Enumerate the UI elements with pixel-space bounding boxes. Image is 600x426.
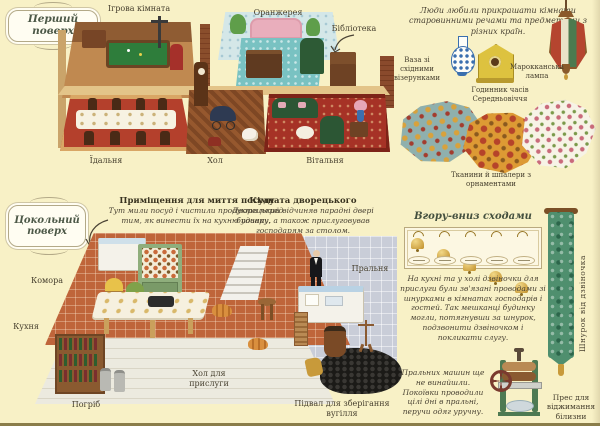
- game-cabinet: [82, 30, 106, 48]
- kitchen-stove-pot: [148, 296, 174, 307]
- fabrics-label: Тканини й шпалери з орнаментами: [428, 171, 554, 189]
- label-game-room: Ігрова кімната: [93, 4, 185, 14]
- laundry-note: Пральних машин ще не винайшли. Покоївки …: [400, 368, 486, 417]
- flower-vase: [357, 110, 364, 122]
- red-bag: [208, 137, 221, 146]
- cat: [248, 338, 268, 350]
- cat: [212, 304, 232, 317]
- label-servants-hall: Хол для прислуги: [176, 369, 242, 389]
- living-sofa: [272, 98, 318, 118]
- plant-right: [306, 18, 320, 36]
- label-dining: Їдальня: [70, 156, 142, 166]
- bells-body: На кухні та у холі дзвіночки для прислуг…: [400, 274, 546, 342]
- green-armchair: [300, 38, 324, 74]
- milk-churn: [114, 370, 125, 392]
- living-armchair: [320, 116, 344, 144]
- label-living: Вітальня: [293, 156, 357, 166]
- laundry-tub: [324, 326, 346, 357]
- library-desk: [246, 50, 282, 78]
- book-page: Перший поверх: [0, 0, 600, 426]
- washboard: [294, 312, 308, 346]
- press-wheel: [490, 370, 512, 392]
- red-chair: [170, 44, 183, 70]
- grandfather-clock: [194, 62, 208, 106]
- pram: [210, 106, 236, 121]
- label-laundry: Пральня: [344, 264, 396, 274]
- press-basin: [506, 400, 534, 412]
- round-table: [296, 126, 314, 139]
- clock-label: Годинник часів Середньовіччя: [452, 86, 548, 104]
- label-kitchen: Кухня: [2, 322, 50, 332]
- bells-title: Вгору-вниз сходами: [406, 211, 540, 224]
- label-orangery: Оранжерея: [232, 8, 324, 18]
- pink-sofa: [250, 18, 302, 39]
- bell-cord-banner: [548, 212, 574, 358]
- label-cellar: Погріб: [60, 400, 112, 410]
- milk-churn: [100, 368, 111, 391]
- dog: [242, 128, 258, 141]
- label-hall: Хол: [194, 156, 236, 166]
- wine-rack: [55, 334, 105, 394]
- label-coal-basement: Підвал для зберігання вугілля: [280, 399, 404, 419]
- vase-label: Ваза зі східними візерунками: [388, 56, 446, 82]
- cord-label: Шнурок від дзвіночка: [578, 242, 587, 366]
- press-label: Прес для віджимання білизни: [544, 393, 598, 421]
- wringer-press-icon: [490, 348, 546, 422]
- bell-board: [404, 227, 542, 269]
- butler-figure: [308, 250, 324, 288]
- dining-table: [76, 110, 176, 129]
- lamp-label: Марокканська лампа: [506, 63, 568, 81]
- drying-stand: [358, 320, 374, 352]
- label-pantry: Комора: [18, 276, 76, 286]
- side-table: [350, 122, 368, 137]
- library-arrow: [330, 33, 356, 55]
- banner-tassel: [558, 364, 564, 376]
- oriental-vase-icon: [449, 36, 475, 78]
- page-edge-shadow: [592, 0, 600, 426]
- fabric-swatch-floral: [518, 98, 598, 172]
